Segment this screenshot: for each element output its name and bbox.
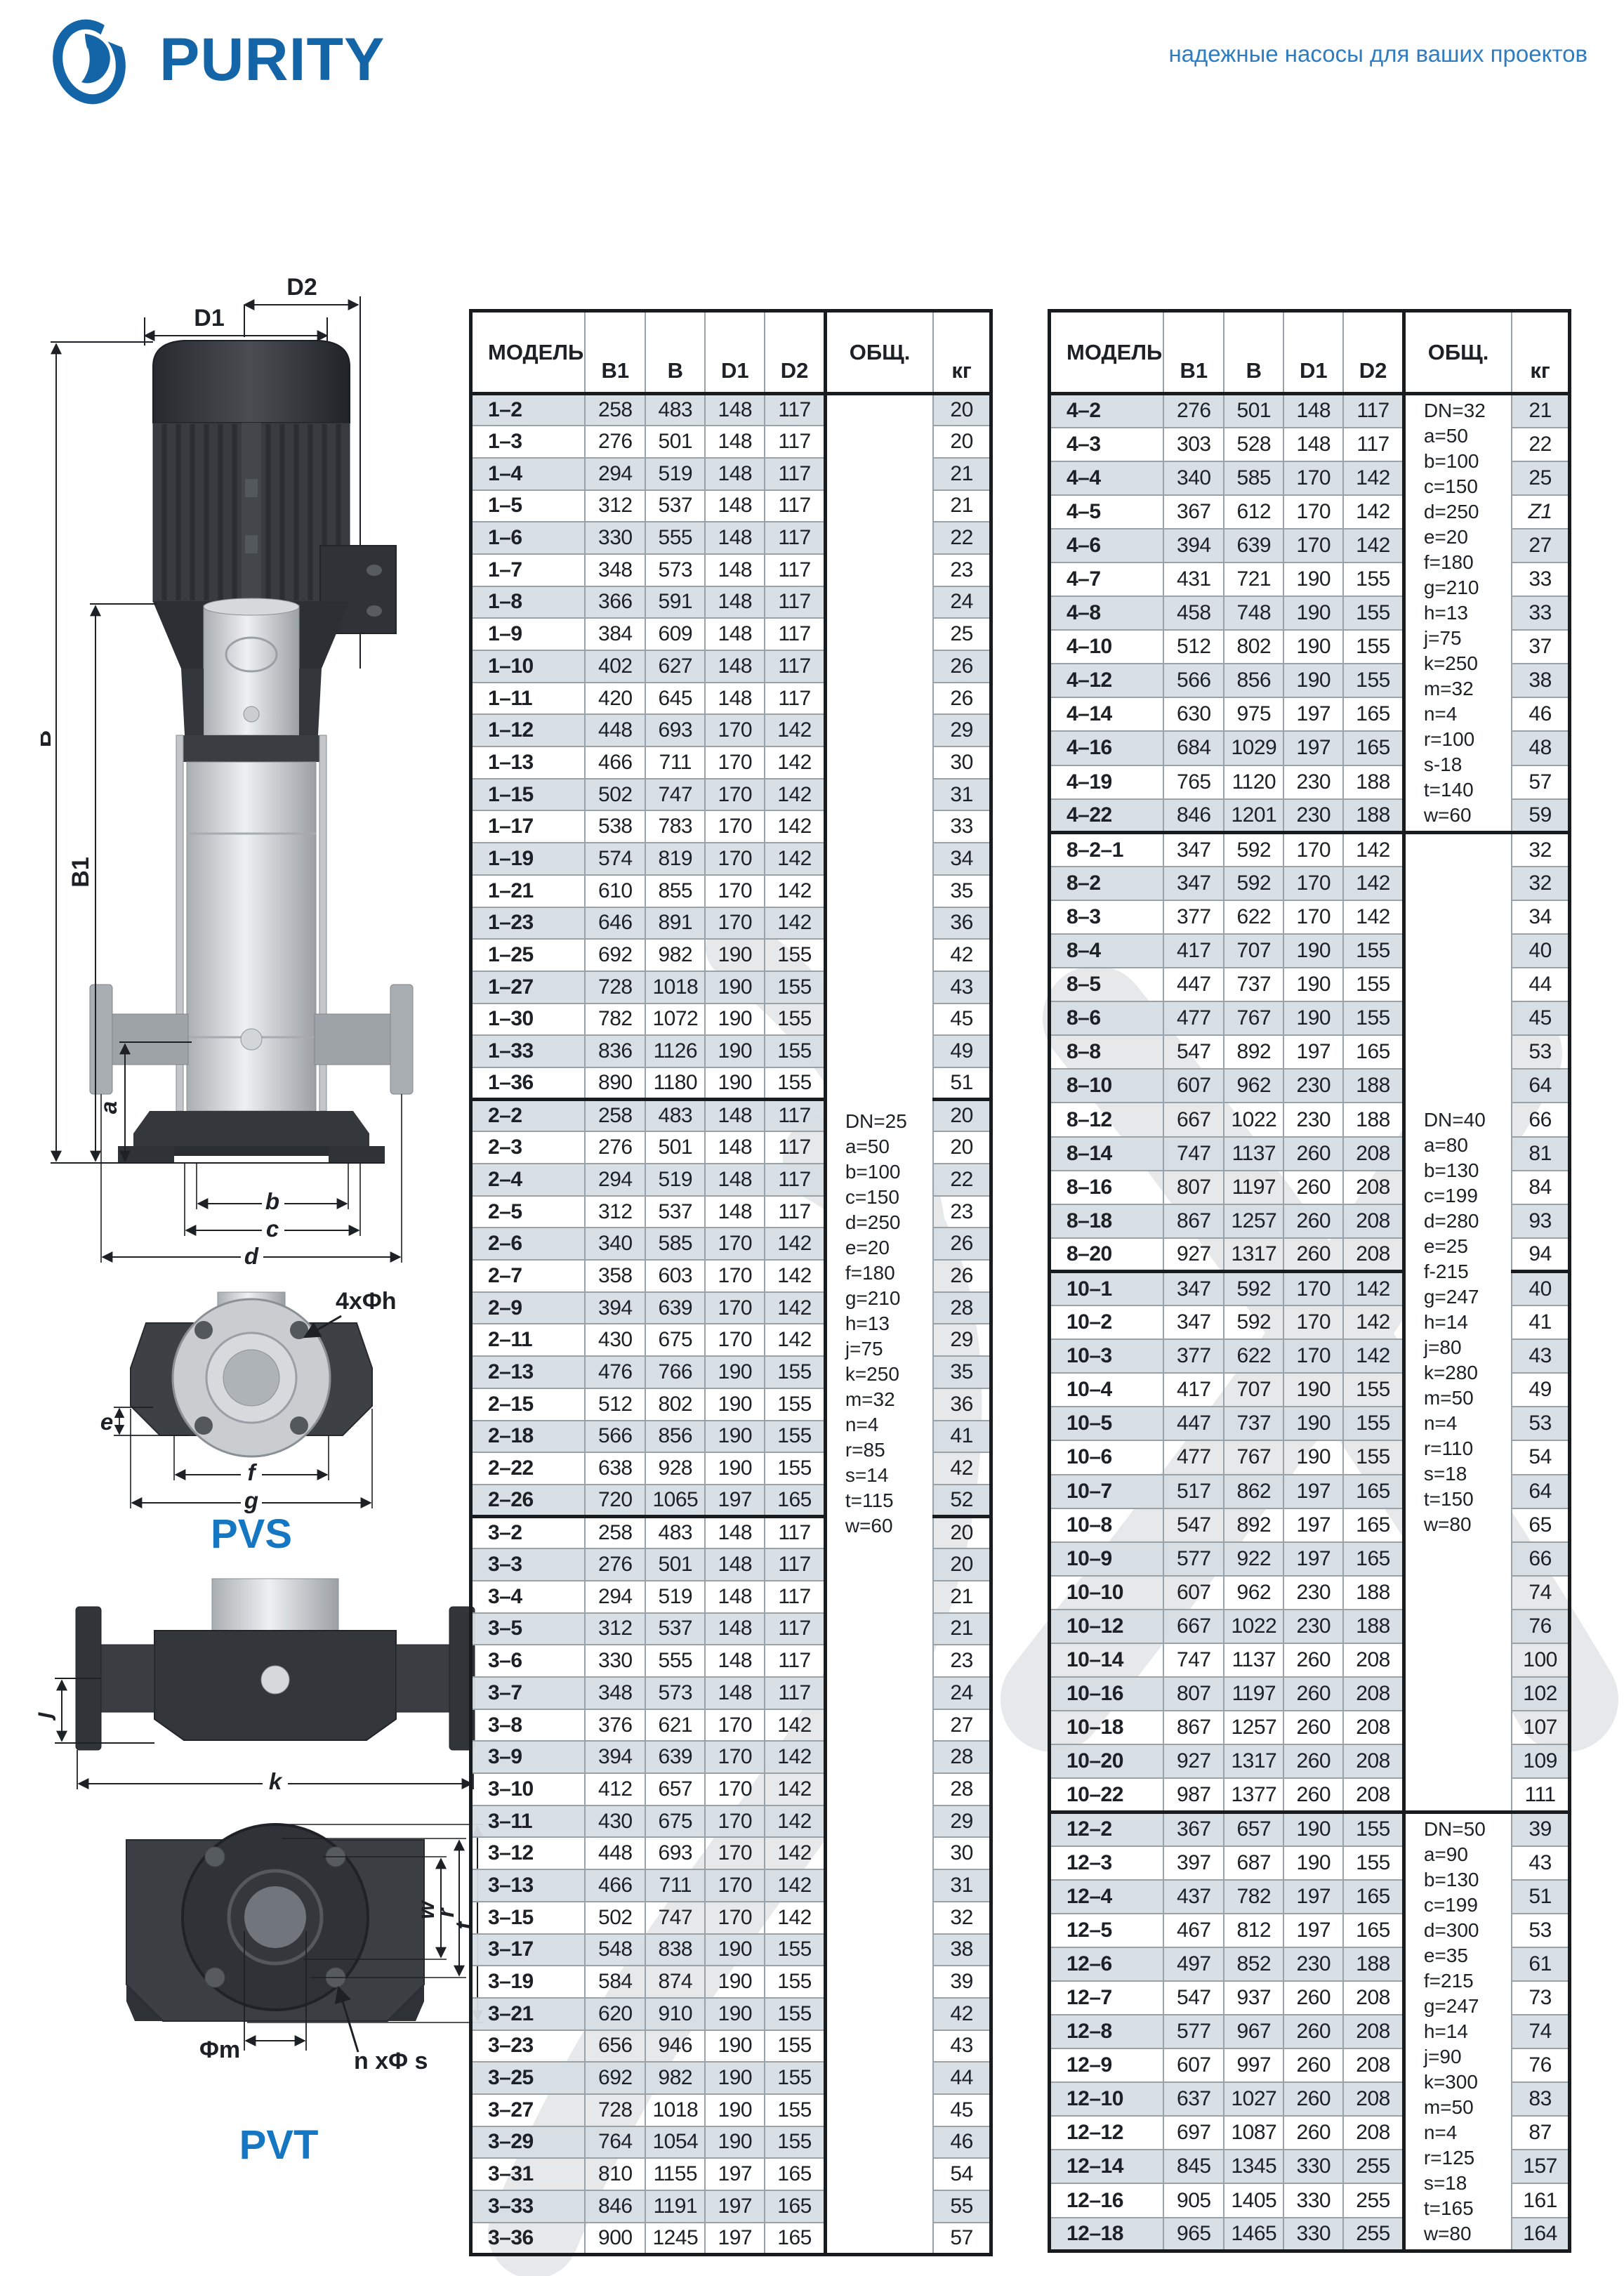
b-cell: 1022 <box>1224 1103 1283 1136</box>
model-cell: 10–3 <box>1050 1339 1164 1373</box>
model-cell: 2–11 <box>471 1324 586 1356</box>
d2-cell: 155 <box>1343 596 1404 630</box>
d2-cell: 155 <box>1343 1812 1404 1846</box>
table-row: 4–2276501148117DN=32 a=50 b=100 c=150 d=… <box>1050 394 1570 428</box>
model-cell: 1–10 <box>471 650 586 683</box>
kg-cell: 157 <box>1512 2150 1569 2183</box>
model-cell: 3–27 <box>471 2094 586 2126</box>
kg-cell: 55 <box>933 2190 991 2223</box>
col-header-model: МОДЕЛЬ <box>471 311 586 394</box>
d1-cell: 170 <box>705 1709 765 1742</box>
b1-cell: 430 <box>585 1805 645 1838</box>
model-cell: 12–5 <box>1050 1914 1164 1947</box>
kg-cell: 66 <box>1512 1103 1569 1136</box>
kg-cell: 45 <box>933 2094 991 2126</box>
d2-cell: 142 <box>765 1292 825 1324</box>
b-cell: 1022 <box>1224 1610 1283 1643</box>
b-cell: 1018 <box>645 2094 705 2126</box>
d1-cell: 260 <box>1283 1238 1343 1272</box>
d2-cell: 117 <box>765 618 825 650</box>
d1-cell: 170 <box>705 810 765 843</box>
d1-cell: 170 <box>1283 900 1343 934</box>
b-cell: 609 <box>645 618 705 650</box>
kg-cell: 100 <box>1512 1643 1569 1677</box>
b1-cell: 574 <box>585 843 645 875</box>
model-cell: 8–5 <box>1050 968 1164 1001</box>
d2-cell: 142 <box>1343 900 1404 934</box>
model-cell: 3–9 <box>471 1741 586 1773</box>
d1-cell: 170 <box>1283 495 1343 529</box>
d1-cell: 170 <box>705 1292 765 1324</box>
kg-cell: 21 <box>1512 394 1569 428</box>
d2-cell: 117 <box>765 650 825 683</box>
d1-cell: 170 <box>1283 1305 1343 1339</box>
kg-cell: 46 <box>1512 697 1569 731</box>
d1-cell: 148 <box>705 426 765 458</box>
b1-cell: 547 <box>1163 1508 1224 1542</box>
d1-cell: 190 <box>1283 1440 1343 1474</box>
kg-cell: 31 <box>933 1869 991 1902</box>
b1-cell: 630 <box>1163 697 1224 731</box>
d1-cell: 230 <box>1283 1947 1343 1981</box>
b1-cell: 692 <box>585 939 645 971</box>
d1-cell: 190 <box>1283 934 1343 968</box>
b-cell: 937 <box>1224 1981 1283 2015</box>
d2-cell: 155 <box>1343 968 1404 1001</box>
d2-cell: 165 <box>1343 1035 1404 1069</box>
d1-cell: 190 <box>705 1966 765 1998</box>
model-cell: 3–17 <box>471 1934 586 1966</box>
kg-cell: 43 <box>933 2030 991 2063</box>
model-cell: 10–22 <box>1050 1778 1164 1812</box>
b-cell: 721 <box>1224 563 1283 596</box>
d1-cell: 190 <box>705 1035 765 1067</box>
d2-cell: 208 <box>1343 2082 1404 2116</box>
d1-cell: 230 <box>1283 1069 1343 1103</box>
d2-cell: 188 <box>1343 1576 1404 1610</box>
model-cell: 8–2–1 <box>1050 833 1164 867</box>
b-cell: 997 <box>1224 2048 1283 2082</box>
model-cell: 4–22 <box>1050 799 1164 833</box>
model-cell: 1–11 <box>471 683 586 715</box>
b1-cell: 448 <box>585 714 645 746</box>
d1-cell: 170 <box>705 714 765 746</box>
kg-cell: 21 <box>933 1613 991 1645</box>
b-cell: 1257 <box>1224 1204 1283 1238</box>
d2-cell: 142 <box>765 1869 825 1902</box>
d1-cell: 148 <box>1283 428 1343 461</box>
model-cell: 8–3 <box>1050 900 1164 934</box>
model-cell: 2–15 <box>471 1388 586 1421</box>
d1-cell: 260 <box>1283 1981 1343 2015</box>
d1-cell: 260 <box>1283 1677 1343 1711</box>
d2-cell: 208 <box>1343 1137 1404 1171</box>
model-cell: 3–10 <box>471 1773 586 1805</box>
d2-cell: 165 <box>765 1485 825 1517</box>
kg-cell: 21 <box>933 458 991 490</box>
d2-cell: 142 <box>765 907 825 940</box>
b1-cell: 764 <box>585 2126 645 2159</box>
b-cell: 1120 <box>1224 765 1283 799</box>
model-cell: 3–15 <box>471 1902 586 1934</box>
kg-cell: 25 <box>1512 461 1569 495</box>
b1-cell: 720 <box>585 1485 645 1517</box>
kg-cell: 26 <box>933 1228 991 1260</box>
model-cell: 10–12 <box>1050 1610 1164 1643</box>
d2-cell: 188 <box>1343 765 1404 799</box>
b-cell: 891 <box>645 907 705 940</box>
d1-cell: 170 <box>1283 1339 1343 1373</box>
model-cell: 2–26 <box>471 1485 586 1517</box>
kg-cell: 29 <box>933 1324 991 1356</box>
b1-cell: 846 <box>1163 799 1224 833</box>
b-cell: 711 <box>645 746 705 779</box>
brand-name: PURITY <box>159 25 385 95</box>
d1-cell: 190 <box>1283 1001 1343 1035</box>
b-cell: 856 <box>645 1421 705 1453</box>
b1-cell: 987 <box>1163 1778 1224 1812</box>
b1-cell: 584 <box>585 1966 645 1998</box>
col-header-kg: кг <box>1512 311 1569 394</box>
d2-cell: 188 <box>1343 1069 1404 1103</box>
kg-cell: 43 <box>933 971 991 1004</box>
model-cell: 4–7 <box>1050 563 1164 596</box>
b-cell: 707 <box>1224 934 1283 968</box>
d2-cell: 155 <box>765 939 825 971</box>
col-header-d2: D2 <box>765 311 825 394</box>
kg-cell: 164 <box>1512 2218 1569 2251</box>
pvs-dim-base-d: d <box>244 1243 259 1269</box>
d2-cell: 142 <box>1343 1339 1404 1373</box>
b-cell: 1087 <box>1224 2116 1283 2150</box>
d2-cell: 142 <box>765 714 825 746</box>
b1-cell: 347 <box>1163 1305 1224 1339</box>
b-cell: 874 <box>645 1966 705 1998</box>
model-cell: 4–19 <box>1050 765 1164 799</box>
b-cell: 748 <box>1224 596 1283 630</box>
model-cell: 2–4 <box>471 1164 586 1196</box>
b1-cell: 810 <box>585 2158 645 2190</box>
brand-logo: PURITY <box>39 15 432 98</box>
b1-cell: 577 <box>1163 1542 1224 1576</box>
d1-cell: 148 <box>705 1196 765 1228</box>
model-cell: 1–19 <box>471 843 586 875</box>
model-cell: 2–18 <box>471 1421 586 1453</box>
b1-cell: 637 <box>1163 2082 1224 2116</box>
model-cell: 1–8 <box>471 586 586 619</box>
b1-cell: 905 <box>1163 2183 1224 2217</box>
kg-cell: 33 <box>1512 563 1569 596</box>
kg-cell: 35 <box>933 1356 991 1388</box>
kg-cell: 74 <box>1512 2015 1569 2048</box>
model-cell: 10–10 <box>1050 1576 1164 1610</box>
d2-cell: 117 <box>765 426 825 458</box>
b-cell: 1197 <box>1224 1677 1283 1711</box>
d1-cell: 170 <box>1283 529 1343 563</box>
b-cell: 592 <box>1224 1305 1283 1339</box>
b1-cell: 417 <box>1163 934 1224 968</box>
d1-cell: 190 <box>1283 1373 1343 1407</box>
d1-cell: 170 <box>705 1902 765 1934</box>
d2-cell: 208 <box>1343 1711 1404 1744</box>
model-cell: 10–2 <box>1050 1305 1164 1339</box>
d1-cell: 197 <box>705 2223 765 2255</box>
b-cell: 1065 <box>645 1485 705 1517</box>
b-cell: 483 <box>645 394 705 426</box>
b1-cell: 276 <box>1163 394 1224 428</box>
model-cell: 4–10 <box>1050 630 1164 664</box>
b-cell: 910 <box>645 1998 705 2030</box>
pvs-label: PVS <box>211 1511 292 1555</box>
d2-cell: 155 <box>765 2062 825 2094</box>
b-cell: 982 <box>645 939 705 971</box>
kg-cell: 76 <box>1512 1610 1569 1643</box>
b-cell: 862 <box>1224 1475 1283 1508</box>
d1-cell: 148 <box>705 1613 765 1645</box>
b1-cell: 538 <box>585 810 645 843</box>
pvs-dim-a: a <box>95 1101 121 1114</box>
d2-cell: 155 <box>1343 1440 1404 1474</box>
kg-cell: 66 <box>1512 1542 1569 1576</box>
d1-cell: 148 <box>705 490 765 522</box>
d1-cell: 190 <box>705 939 765 971</box>
b-cell: 1054 <box>645 2126 705 2159</box>
b1-cell: 867 <box>1163 1204 1224 1238</box>
d2-cell: 142 <box>1343 1272 1404 1305</box>
d2-cell: 117 <box>765 458 825 490</box>
kg-cell: 41 <box>1512 1305 1569 1339</box>
b1-cell: 417 <box>1163 1373 1224 1407</box>
d1-cell: 230 <box>1283 1610 1343 1643</box>
b1-cell: 303 <box>1163 428 1224 461</box>
model-cell: 4–12 <box>1050 664 1164 697</box>
dn-dimensions-note: DN=40 a=80 b=130 c=199 d=280 e=25 f-215 … <box>1404 833 1512 1813</box>
kg-cell: 20 <box>933 1100 991 1132</box>
model-cell: 8–18 <box>1050 1204 1164 1238</box>
model-cell: 1–21 <box>471 875 586 907</box>
model-cell: 10–14 <box>1050 1643 1164 1677</box>
model-cell: 8–8 <box>1050 1035 1164 1069</box>
b-cell: 555 <box>645 1645 705 1677</box>
pvs-dim-base-b: b <box>265 1188 279 1214</box>
d2-cell: 142 <box>1343 461 1404 495</box>
b1-cell: 447 <box>1163 1407 1224 1440</box>
b-cell: 1257 <box>1224 1711 1283 1744</box>
d1-cell: 190 <box>1283 596 1343 630</box>
model-cell: 1–15 <box>471 779 586 811</box>
d2-cell: 155 <box>765 1998 825 2030</box>
b1-cell: 927 <box>1163 1238 1224 1272</box>
kg-cell: 34 <box>1512 900 1569 934</box>
b-cell: 612 <box>1224 495 1283 529</box>
model-cell: 1–3 <box>471 426 586 458</box>
b1-cell: 765 <box>1163 765 1224 799</box>
d2-cell: 142 <box>765 746 825 779</box>
kg-cell: 22 <box>933 522 991 554</box>
kg-cell: 39 <box>1512 1812 1569 1846</box>
kg-cell: 65 <box>1512 1508 1569 1542</box>
b1-cell: 900 <box>585 2223 645 2255</box>
b-cell: 693 <box>645 1837 705 1869</box>
b1-cell: 512 <box>1163 630 1224 664</box>
d1-cell: 148 <box>705 1581 765 1613</box>
d1-cell: 148 <box>705 618 765 650</box>
d1-cell: 148 <box>705 1517 765 1549</box>
b-cell: 1245 <box>645 2223 705 2255</box>
model-cell: 10–4 <box>1050 1373 1164 1407</box>
d2-cell: 155 <box>765 971 825 1004</box>
b-cell: 922 <box>1224 1542 1283 1576</box>
d1-cell: 148 <box>705 1164 765 1196</box>
model-cell: 1–33 <box>471 1035 586 1067</box>
b1-cell: 466 <box>585 746 645 779</box>
b1-cell: 965 <box>1163 2218 1224 2251</box>
b1-cell: 377 <box>1163 900 1224 934</box>
kg-cell: 81 <box>1512 1137 1569 1171</box>
model-cell: 2–6 <box>471 1228 586 1260</box>
kg-cell: 73 <box>1512 1981 1569 2015</box>
b-cell: 1018 <box>645 971 705 1004</box>
model-cell: 1–30 <box>471 1004 586 1036</box>
b-cell: 555 <box>645 522 705 554</box>
d1-cell: 148 <box>705 1131 765 1164</box>
b-cell: 519 <box>645 458 705 490</box>
pump-dimensions-table: МОДЕЛЬ B1 B D1 D2 ОБЩ. кг 4–227650114811… <box>1048 309 1571 2253</box>
b-cell: 657 <box>1224 1812 1283 1846</box>
d2-cell: 208 <box>1343 1238 1404 1272</box>
d1-cell: 260 <box>1283 1744 1343 1778</box>
b-cell: 1405 <box>1224 2183 1283 2217</box>
b1-cell: 348 <box>585 554 645 586</box>
kg-cell: 28 <box>933 1773 991 1805</box>
d1-cell: 330 <box>1283 2183 1343 2217</box>
model-cell: 1–13 <box>471 746 586 779</box>
b1-cell: 397 <box>1163 1846 1224 1880</box>
kg-cell: 51 <box>933 1067 991 1100</box>
b-cell: 501 <box>645 426 705 458</box>
kg-cell: 36 <box>933 907 991 940</box>
kg-cell: 40 <box>1512 934 1569 968</box>
b-cell: 519 <box>645 1581 705 1613</box>
model-cell: 3–19 <box>471 1966 586 1998</box>
b1-cell: 458 <box>1163 596 1224 630</box>
d1-cell: 330 <box>1283 2150 1343 2183</box>
model-cell: 2–2 <box>471 1100 586 1132</box>
kg-cell: 40 <box>1512 1272 1569 1305</box>
d2-cell: 142 <box>765 1324 825 1356</box>
d1-cell: 260 <box>1283 1171 1343 1204</box>
d1-cell: 170 <box>1283 1272 1343 1305</box>
b-cell: 767 <box>1224 1001 1283 1035</box>
model-cell: 12–18 <box>1050 2218 1164 2251</box>
kg-cell: 33 <box>933 810 991 843</box>
model-cell: 2–22 <box>471 1452 586 1485</box>
b-cell: 1137 <box>1224 1643 1283 1677</box>
b1-cell: 577 <box>1163 2015 1224 2048</box>
kg-cell: 38 <box>1512 664 1569 697</box>
d1-cell: 170 <box>1283 461 1343 495</box>
d1-cell: 197 <box>1283 1508 1343 1542</box>
d1-cell: 148 <box>705 1677 765 1709</box>
d2-cell: 155 <box>765 1452 825 1485</box>
model-cell: 3–6 <box>471 1645 586 1677</box>
model-cell: 4–3 <box>1050 428 1164 461</box>
b-cell: 892 <box>1224 1508 1283 1542</box>
kg-cell: 20 <box>933 1131 991 1164</box>
kg-cell: 29 <box>933 1805 991 1838</box>
d2-cell: 117 <box>765 490 825 522</box>
b1-cell: 477 <box>1163 1440 1224 1474</box>
d2-cell: 188 <box>1343 1610 1404 1643</box>
b-cell: 982 <box>645 2062 705 2094</box>
b1-cell: 807 <box>1163 1171 1224 1204</box>
d1-cell: 148 <box>705 1100 765 1132</box>
d1-cell: 148 <box>705 394 765 426</box>
d1-cell: 170 <box>705 1773 765 1805</box>
d2-cell: 208 <box>1343 1643 1404 1677</box>
d1-cell: 190 <box>705 1356 765 1388</box>
model-cell: 3–29 <box>471 2126 586 2159</box>
kg-cell: 32 <box>1512 867 1569 900</box>
kg-cell: 21 <box>933 1581 991 1613</box>
kg-cell: 28 <box>933 1292 991 1324</box>
model-cell: 3–2 <box>471 1517 586 1549</box>
kg-cell: 24 <box>933 586 991 619</box>
b-cell: 967 <box>1224 2015 1283 2048</box>
b-cell: 483 <box>645 1100 705 1132</box>
b1-cell: 502 <box>585 779 645 811</box>
b-cell: 1072 <box>645 1004 705 1036</box>
d1-cell: 190 <box>1283 968 1343 1001</box>
d2-cell: 117 <box>765 522 825 554</box>
kg-cell: 41 <box>933 1421 991 1453</box>
model-cell: 1–17 <box>471 810 586 843</box>
kg-cell: 36 <box>933 1388 991 1421</box>
d1-cell: 170 <box>705 907 765 940</box>
b1-cell: 697 <box>1163 2116 1224 2150</box>
d1-cell: 148 <box>705 1645 765 1677</box>
d2-cell: 142 <box>1343 833 1404 867</box>
b-cell: 1137 <box>1224 1137 1283 1171</box>
pvt-pump-drawing: j k Φm n xΦ s w r t PVT <box>37 1566 491 2198</box>
d2-cell: 117 <box>765 554 825 586</box>
b1-cell: 366 <box>585 586 645 619</box>
kg-cell: 32 <box>933 1902 991 1934</box>
col-header-total: ОБЩ. <box>1404 311 1512 394</box>
b1-cell: 312 <box>585 1196 645 1228</box>
d1-cell: 170 <box>705 875 765 907</box>
d2-cell: 208 <box>1343 1171 1404 1204</box>
d2-cell: 142 <box>765 1260 825 1292</box>
d1-cell: 190 <box>705 1998 765 2030</box>
d1-cell: 197 <box>705 1485 765 1517</box>
pvt-dim-r: r <box>433 1907 458 1917</box>
d1-cell: 190 <box>1283 664 1343 697</box>
kg-cell: 54 <box>933 2158 991 2190</box>
b-cell: 1201 <box>1224 799 1283 833</box>
b1-cell: 276 <box>585 1548 645 1581</box>
d1-cell: 197 <box>1283 1035 1343 1069</box>
kg-cell: 26 <box>933 1260 991 1292</box>
b-cell: 573 <box>645 1677 705 1709</box>
b-cell: 1345 <box>1224 2150 1283 2183</box>
kg-cell: 53 <box>1512 1914 1569 1947</box>
d2-cell: 255 <box>1343 2218 1404 2251</box>
col-header-b: B <box>645 311 705 394</box>
b-cell: 802 <box>645 1388 705 1421</box>
model-cell: 3–25 <box>471 2062 586 2094</box>
d2-cell: 165 <box>1343 1914 1404 1947</box>
